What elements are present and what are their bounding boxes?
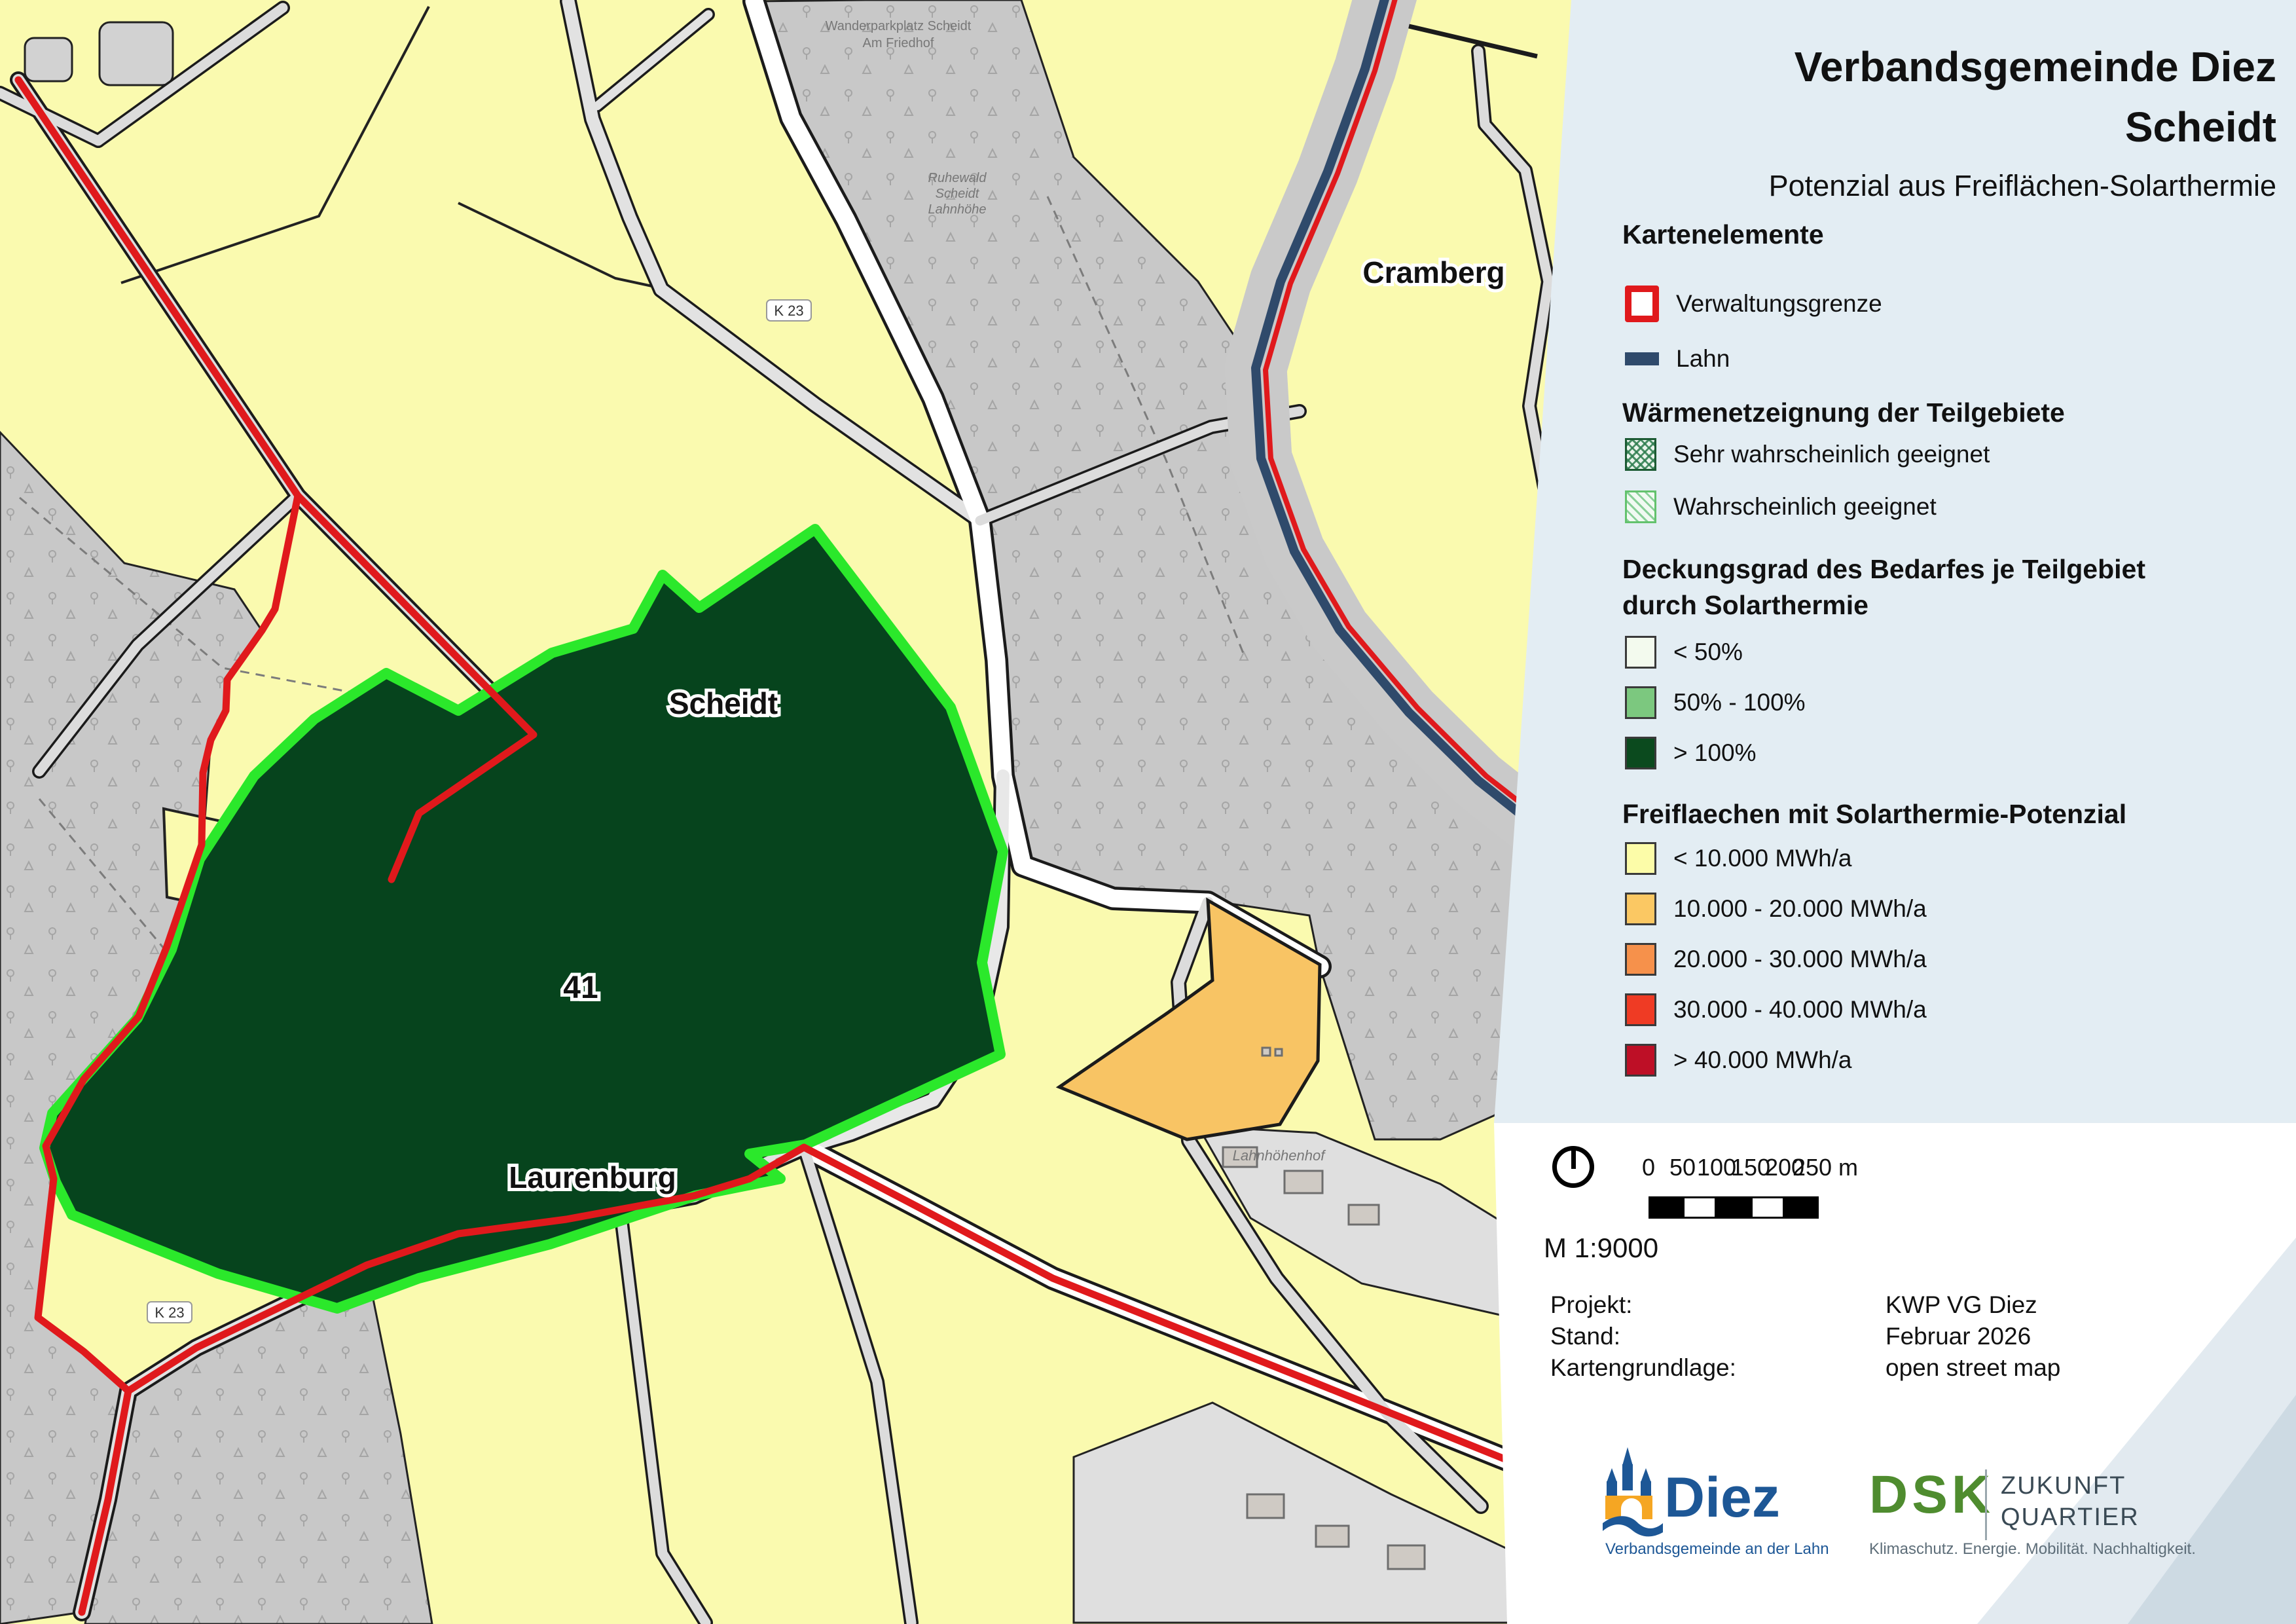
- label-laurenburg: Laurenburg: [509, 1160, 676, 1194]
- legend-heading-kartenelemente: Kartenelemente: [1622, 219, 1824, 250]
- verwaltungsgrenze-swatch: [1625, 286, 1659, 322]
- project-label: Projekt:: [1550, 1291, 1632, 1319]
- svg-text:Ruhewald: Ruhewald: [928, 171, 987, 185]
- road-badge-k23-bottom: K 23: [147, 1302, 192, 1323]
- stand-value: Februar 2026: [1886, 1323, 2031, 1350]
- kartengrundlage-value: open street map: [1886, 1354, 2060, 1382]
- legend-item-deck-50-100: 50% - 100%: [1625, 684, 1806, 721]
- kartengrundlage-label: Kartengrundlage:: [1550, 1354, 1736, 1382]
- legend-item-deck-lt50: < 50%: [1625, 634, 1743, 671]
- project-value: KWP VG Diez: [1886, 1291, 2037, 1319]
- page-subtitle: Potenzial aus Freiflächen-Solarthermie: [1769, 169, 2276, 203]
- title-block: Verbandsgemeinde Diez Scheidt Potenzial …: [1769, 37, 2276, 203]
- legend-item-frei-20-30: 20.000 - 30.000 MWh/a: [1625, 941, 1927, 978]
- dsk-logo-line2: QUARTIER: [2001, 1504, 2140, 1532]
- legend-item-frei-30-40: 30.000 - 40.000 MWh/a: [1625, 991, 1927, 1028]
- legend-item-verwaltungsgrenze: Verwaltungsgrenze: [1625, 286, 1882, 322]
- sehr-geeignet-swatch: [1625, 438, 1656, 471]
- legend-item-lahn: Lahn: [1625, 341, 1730, 377]
- svg-text:Wanderparkplatz Scheidt: Wanderparkplatz Scheidt: [826, 19, 972, 33]
- diez-logo-name: Diez: [1664, 1466, 1780, 1530]
- svg-text:K 23: K 23: [155, 1304, 184, 1321]
- page-title-line1: Verbandsgemeinde Diez: [1769, 37, 2276, 97]
- svg-text:Lahnhöhe: Lahnhöhe: [928, 202, 987, 217]
- stand-label: Stand:: [1550, 1323, 1620, 1350]
- page-title-line2: Scheidt: [1769, 97, 2276, 157]
- legend-item-frei-gt40: > 40.000 MWh/a: [1625, 1042, 1852, 1079]
- dsk-logo-line1: ZUKUNFT: [2001, 1472, 2126, 1500]
- lahn-swatch: [1625, 352, 1659, 365]
- scalebar-seg3: [1717, 1196, 1751, 1219]
- legend-item-deck-gt100: > 100%: [1625, 735, 1757, 771]
- legend-item-sehr-geeignet: Sehr wahrscheinlich geeignet: [1625, 436, 1990, 473]
- road-badge-k23-top: K 23: [767, 300, 811, 321]
- svg-text:Am Friedhof: Am Friedhof: [863, 36, 934, 50]
- svg-text:K 23: K 23: [774, 303, 803, 319]
- legend-heading-freiflaechen: Freiflaechen mit Solarthermie-Potenzial: [1622, 799, 2126, 830]
- dsk-logo-divider: [1985, 1469, 1987, 1540]
- map-scale-text: M 1:9000: [1544, 1232, 1658, 1264]
- dsk-logo-name: DSK: [1869, 1464, 1994, 1526]
- label-scheidt: Scheidt: [669, 686, 778, 720]
- legend-heading-deckungsgrad: Deckungsgrad des Bedarfes je Teilgebiet …: [1622, 551, 2145, 623]
- legend-item-frei-10-20: 10.000 - 20.000 MWh/a: [1625, 891, 1927, 927]
- label-cramberg: Cramberg: [1362, 255, 1504, 289]
- legend-heading-waermenetz: Wärmenetzeignung der Teilgebiete: [1622, 397, 2065, 428]
- svg-text:Scheidt: Scheidt: [936, 187, 980, 201]
- label-area-number: 41: [563, 970, 598, 1005]
- scalebar-seg1: [1649, 1196, 1683, 1219]
- legend-item-wahrscheinlich-geeignet: Wahrscheinlich geeignet: [1625, 489, 1937, 525]
- svg-text:Lahnhöhenhof: Lahnhöhenhof: [1233, 1147, 1327, 1164]
- north-arrow-icon: [1552, 1146, 1594, 1188]
- diez-castle-icon: [1603, 1446, 1663, 1538]
- dsk-logo-tagline: Klimaschutz. Energie. Mobilität. Nachhal…: [1869, 1540, 2196, 1559]
- scalebar-seg4: [1751, 1196, 1785, 1219]
- diez-logo-subtitle: Verbandsgemeinde an der Lahn: [1605, 1540, 1829, 1559]
- wahrscheinlich-geeignet-swatch: [1625, 490, 1656, 523]
- scale-tick-250: 250 m: [1786, 1154, 1865, 1181]
- scalebar-seg2: [1683, 1196, 1717, 1219]
- legend-item-frei-lt10000: < 10.000 MWh/a: [1625, 840, 1852, 877]
- scalebar-seg5: [1785, 1196, 1819, 1219]
